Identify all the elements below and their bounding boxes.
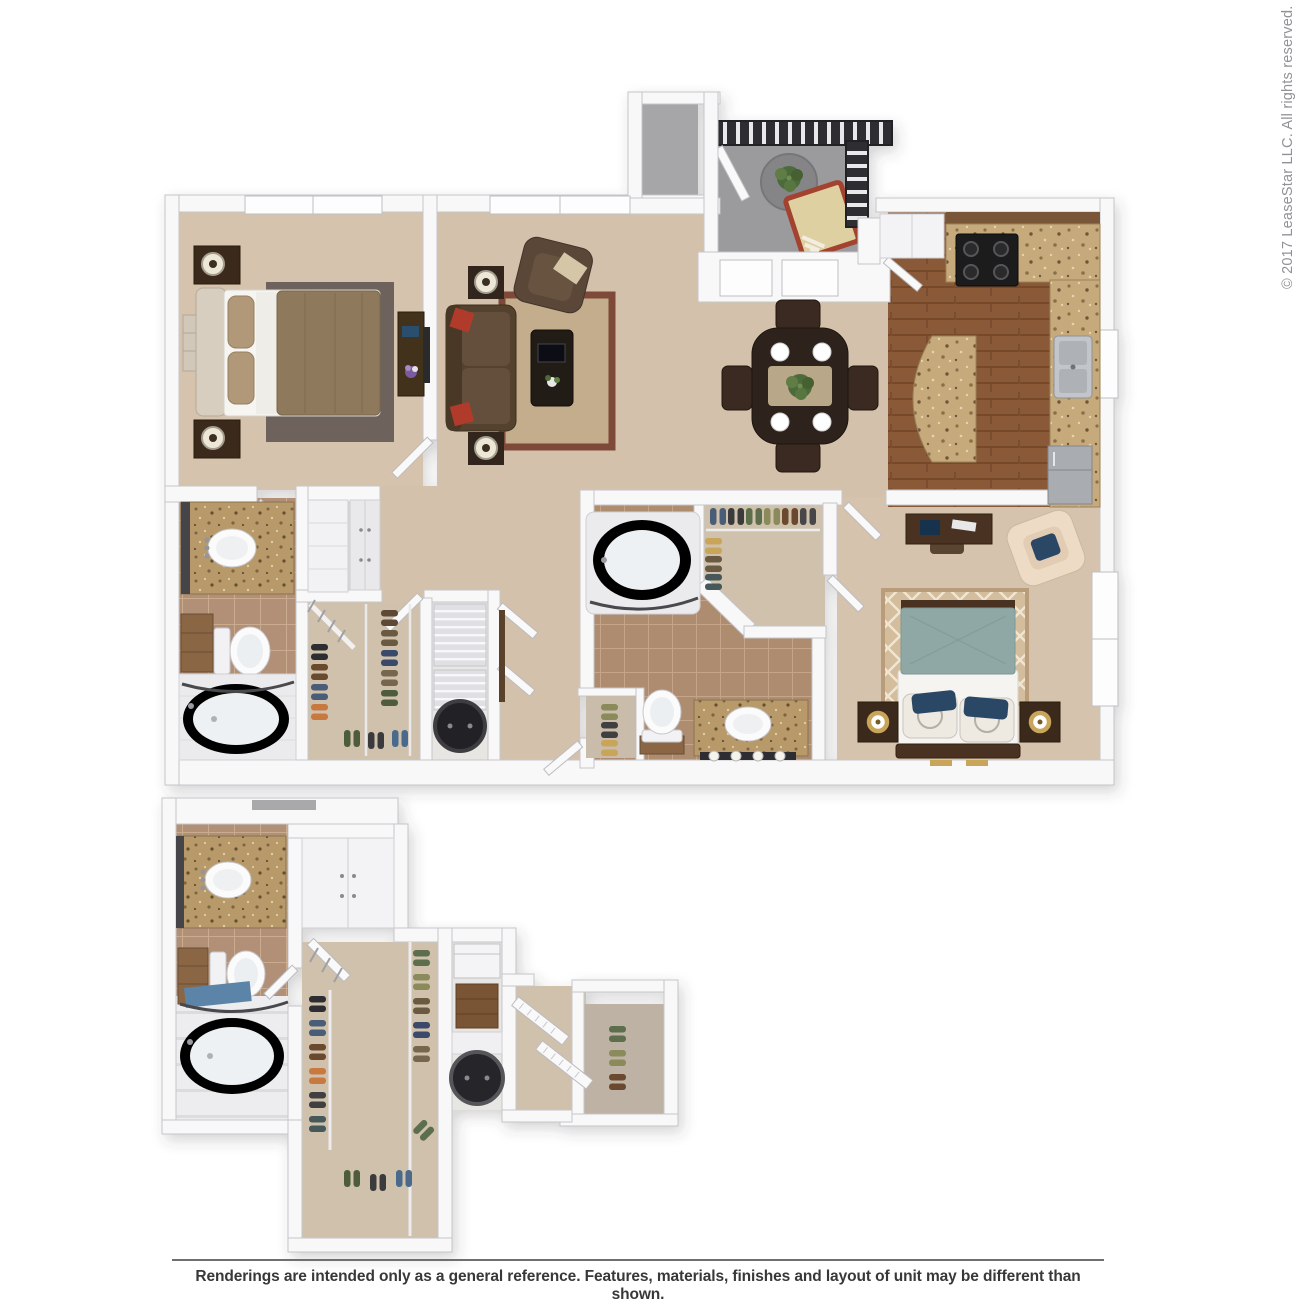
- bath-cabinet: [181, 614, 213, 672]
- tv: [423, 327, 430, 383]
- plate: [813, 413, 831, 431]
- laptop: [402, 326, 419, 337]
- patio-window-1: [720, 260, 772, 296]
- detail-water-heater: [451, 1052, 503, 1104]
- bed-1-pillow: [228, 296, 254, 348]
- bathtub-2: [586, 512, 700, 614]
- dining-chair: [776, 442, 820, 472]
- detail-vanity: [176, 836, 286, 928]
- navy-pillow: [963, 696, 1009, 720]
- watermark-text: © 2017 LeaseStar LLC. All rights reserve…: [1280, 6, 1296, 289]
- coffee-table: [531, 330, 573, 406]
- lamp: [475, 437, 497, 459]
- vanity-1: [181, 502, 294, 594]
- storage-closet-floor: [640, 104, 698, 200]
- bed-2-headboard: [896, 744, 1020, 758]
- lamp: [202, 427, 224, 449]
- refrigerator: [1048, 446, 1092, 504]
- bed-1-headboard: [196, 288, 226, 416]
- ensuite-wall: [812, 638, 825, 760]
- shoe-closet: [578, 688, 644, 760]
- bed-1-duvet: [277, 291, 380, 415]
- roof-vent: [252, 800, 316, 810]
- dining-chair: [776, 300, 820, 330]
- bed-2: [896, 600, 1020, 766]
- footer: Renderings are intended only as a genera…: [172, 1259, 1104, 1304]
- bed-1: [196, 288, 380, 416]
- kitchen-sink: [1054, 336, 1092, 398]
- desk-monitor: [920, 520, 940, 535]
- plate: [771, 413, 789, 431]
- laundry-door: [499, 610, 505, 702]
- water-heater: [435, 701, 485, 751]
- bathtub-1: [179, 674, 296, 760]
- floorplan-rendering: [0, 0, 1300, 1300]
- stove: [956, 234, 1018, 286]
- linen-closet: [308, 500, 380, 592]
- wire-shelf: [434, 604, 486, 666]
- vanity-2: [694, 700, 808, 761]
- bed-1-sheet: [256, 292, 278, 414]
- lamp: [869, 713, 887, 731]
- dining-chair: [848, 366, 878, 410]
- lamp: [1031, 713, 1049, 731]
- sofa: [446, 305, 516, 431]
- bedroom1-living-wall: [423, 195, 437, 440]
- patio-railing-right: [846, 141, 868, 227]
- detail-laundry: [451, 944, 503, 1104]
- mirror: [181, 502, 190, 594]
- main-floorplan: [165, 92, 1118, 785]
- bed-2-duvet: [901, 608, 1015, 674]
- toilet-2: [640, 690, 684, 754]
- mirror: [176, 836, 184, 928]
- laundry-shelf: [456, 984, 498, 1028]
- plate: [771, 343, 789, 361]
- dining-chair: [722, 366, 752, 410]
- bedroom-1-desk: [398, 312, 424, 396]
- detail-shoe-closet-floor: [584, 1004, 664, 1114]
- slippers: [930, 760, 952, 766]
- detail-hall-closet: [302, 838, 394, 928]
- disclaimer-text: Renderings are intended only as a genera…: [172, 1268, 1104, 1304]
- bathroom1-right-wall: [296, 486, 308, 760]
- living-room: [446, 235, 612, 465]
- toilet-1: [214, 627, 270, 675]
- washer: [454, 944, 500, 978]
- slippers: [966, 760, 988, 766]
- bed-1-pillow: [228, 352, 254, 404]
- lamp: [202, 253, 224, 275]
- breakfast-bar: [913, 336, 976, 462]
- plate: [813, 343, 831, 361]
- lamp: [475, 271, 497, 293]
- patio-window-2: [782, 260, 838, 296]
- detail-floorplan: [162, 798, 678, 1252]
